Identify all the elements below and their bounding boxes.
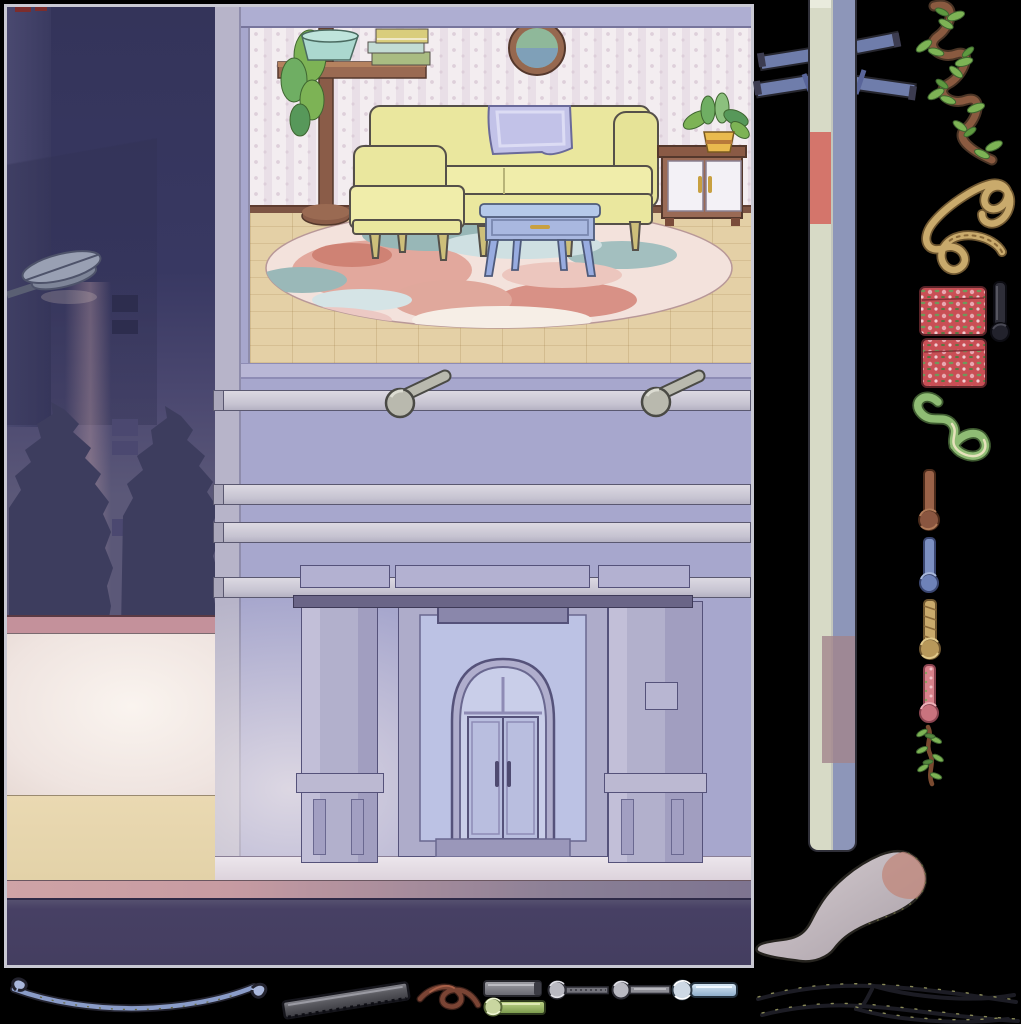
sidewalk xyxy=(7,898,751,965)
sagging-wire[interactable] xyxy=(13,979,266,1010)
book-stack xyxy=(368,29,430,65)
entrance-portal xyxy=(398,601,608,857)
street-scene xyxy=(4,4,754,968)
green-cord[interactable] xyxy=(918,397,986,456)
red-fragment xyxy=(35,7,47,11)
pole-red-patch xyxy=(810,132,831,224)
thorny-twigs[interactable] xyxy=(758,984,1018,1022)
low-wall-coping xyxy=(7,615,215,633)
brown-knotted-stick[interactable] xyxy=(919,470,939,530)
lamp-glow xyxy=(41,290,97,304)
pilaster-groove xyxy=(351,799,364,855)
floral-fabric-rolls[interactable] xyxy=(920,287,986,387)
gray-pipe[interactable] xyxy=(484,981,541,996)
pilaster-left-cap xyxy=(296,773,384,793)
far-window xyxy=(112,320,138,334)
blue-knotted-stick[interactable] xyxy=(920,538,938,592)
red-fragment xyxy=(15,7,31,12)
throw-blanket xyxy=(489,106,573,154)
pilaster-groove xyxy=(621,799,634,855)
stocking-toe-patch xyxy=(882,851,938,899)
living-room-furniture xyxy=(250,28,751,363)
rope-coil[interactable] xyxy=(926,183,1010,270)
low-wall xyxy=(7,633,215,795)
door-step xyxy=(436,839,570,857)
wall-mirror xyxy=(509,28,565,75)
dark-metal-pipe[interactable] xyxy=(283,982,410,1019)
facade-rail-2 xyxy=(213,484,751,505)
street-lamp xyxy=(7,237,119,309)
stocking[interactable] xyxy=(748,845,1021,963)
blue-wrapped-pipe[interactable] xyxy=(673,981,738,1000)
leather-twist[interactable] xyxy=(420,986,478,1007)
building-corner-trim xyxy=(215,7,241,856)
double-door[interactable] xyxy=(468,717,538,839)
facade-rail-3 xyxy=(213,522,751,543)
tree-silhouettes xyxy=(7,380,222,635)
sprite-sheet-page: { "scene": { "description": "night stree… xyxy=(0,0,1021,1024)
knotted-rod-2[interactable] xyxy=(613,982,671,999)
utility-pole[interactable] xyxy=(808,0,857,852)
door-sign-plaque xyxy=(645,682,678,710)
living-room-window xyxy=(248,28,751,363)
metal-peg-right[interactable] xyxy=(627,357,717,419)
potted-plant xyxy=(680,93,751,152)
side-cabinet xyxy=(658,146,746,226)
pole-top-cap xyxy=(810,0,831,8)
door-handle[interactable] xyxy=(495,761,499,787)
green-wrapped-pipe[interactable] xyxy=(485,999,546,1016)
door-handle[interactable] xyxy=(507,761,511,787)
floral-knotted-stick[interactable] xyxy=(920,665,938,722)
pole-mauve-patch xyxy=(822,636,855,763)
pilaster-groove xyxy=(671,799,684,855)
black-cord-stick[interactable] xyxy=(991,282,1009,341)
facade-panel xyxy=(598,565,690,588)
leafy-twig[interactable] xyxy=(915,727,944,784)
storefront-lintel xyxy=(293,595,693,608)
rope-knotted-stick[interactable] xyxy=(920,600,940,659)
tree xyxy=(121,406,219,630)
facade-panel xyxy=(395,565,590,588)
item-column xyxy=(898,0,1021,800)
leafy-vine[interactable] xyxy=(914,5,1004,160)
curb-band xyxy=(7,880,751,898)
pilaster-groove xyxy=(313,799,326,855)
low-wall-base xyxy=(7,795,215,880)
pilaster-right-cap xyxy=(604,773,707,793)
knotted-rod-1[interactable] xyxy=(549,982,609,999)
facade-top-band xyxy=(241,7,751,28)
facade-panel xyxy=(300,565,390,588)
tree xyxy=(9,402,113,630)
item-row xyxy=(0,975,1021,1024)
metal-peg-left[interactable] xyxy=(365,359,460,421)
